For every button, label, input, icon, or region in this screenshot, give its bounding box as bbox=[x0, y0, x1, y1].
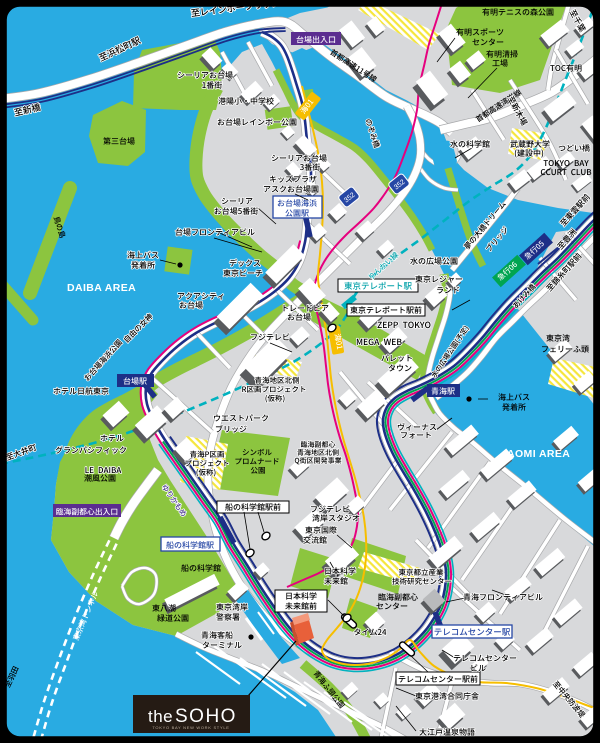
svg-text:SOHO: SOHO bbox=[175, 706, 237, 727]
svg-text:AOMI AREA: AOMI AREA bbox=[507, 448, 570, 460]
svg-text:the: the bbox=[148, 707, 173, 726]
svg-text:DAIBA AREA: DAIBA AREA bbox=[67, 282, 136, 294]
svg-text:TOKYO BAY NEW WORK STYLE: TOKYO BAY NEW WORK STYLE bbox=[152, 725, 229, 730]
